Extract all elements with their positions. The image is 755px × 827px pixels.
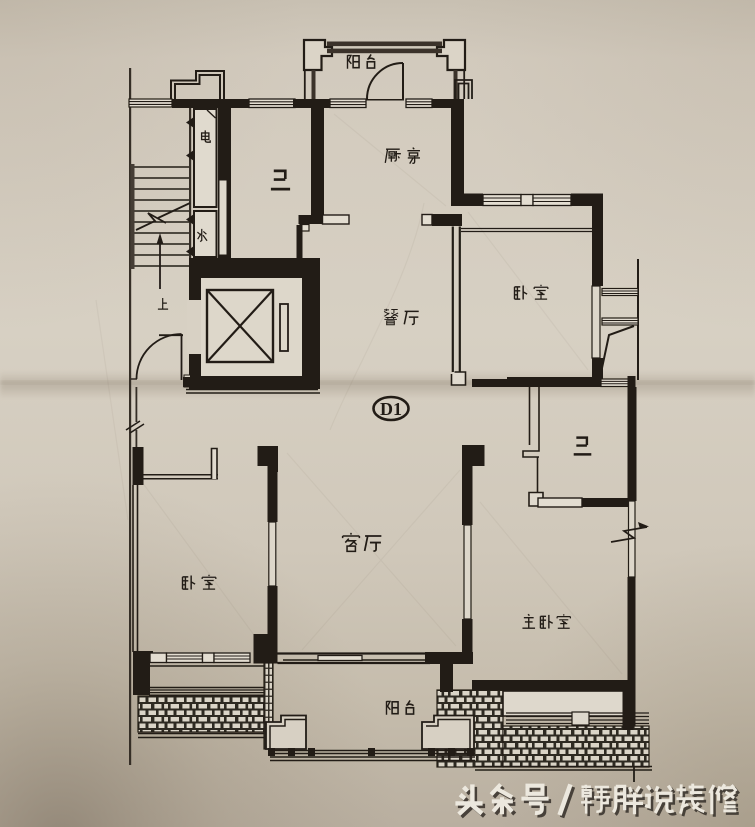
svg-text:D1: D1 [380,399,402,419]
